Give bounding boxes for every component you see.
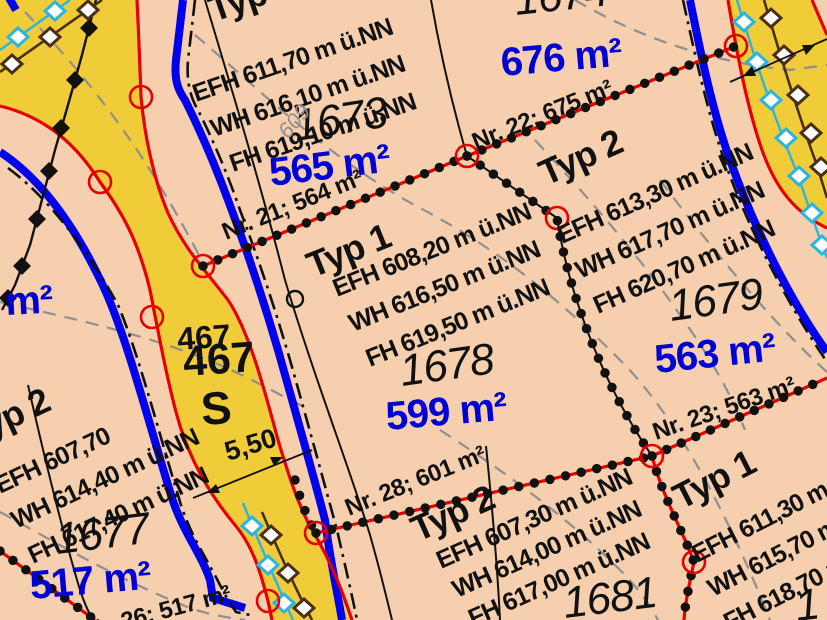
partial-area-label: m² xyxy=(4,278,54,324)
road-letter: S xyxy=(199,381,233,435)
cadastral-map-canvas[interactable]: Typ 2 EFH 611,70 m ü.NN WH 616,10 m ü.NN… xyxy=(0,0,827,620)
road-number-large: 467 xyxy=(181,333,256,386)
cadastral-map-viewport[interactable]: Typ 2 EFH 611,70 m ü.NN WH 616,10 m ü.NN… xyxy=(0,0,827,620)
